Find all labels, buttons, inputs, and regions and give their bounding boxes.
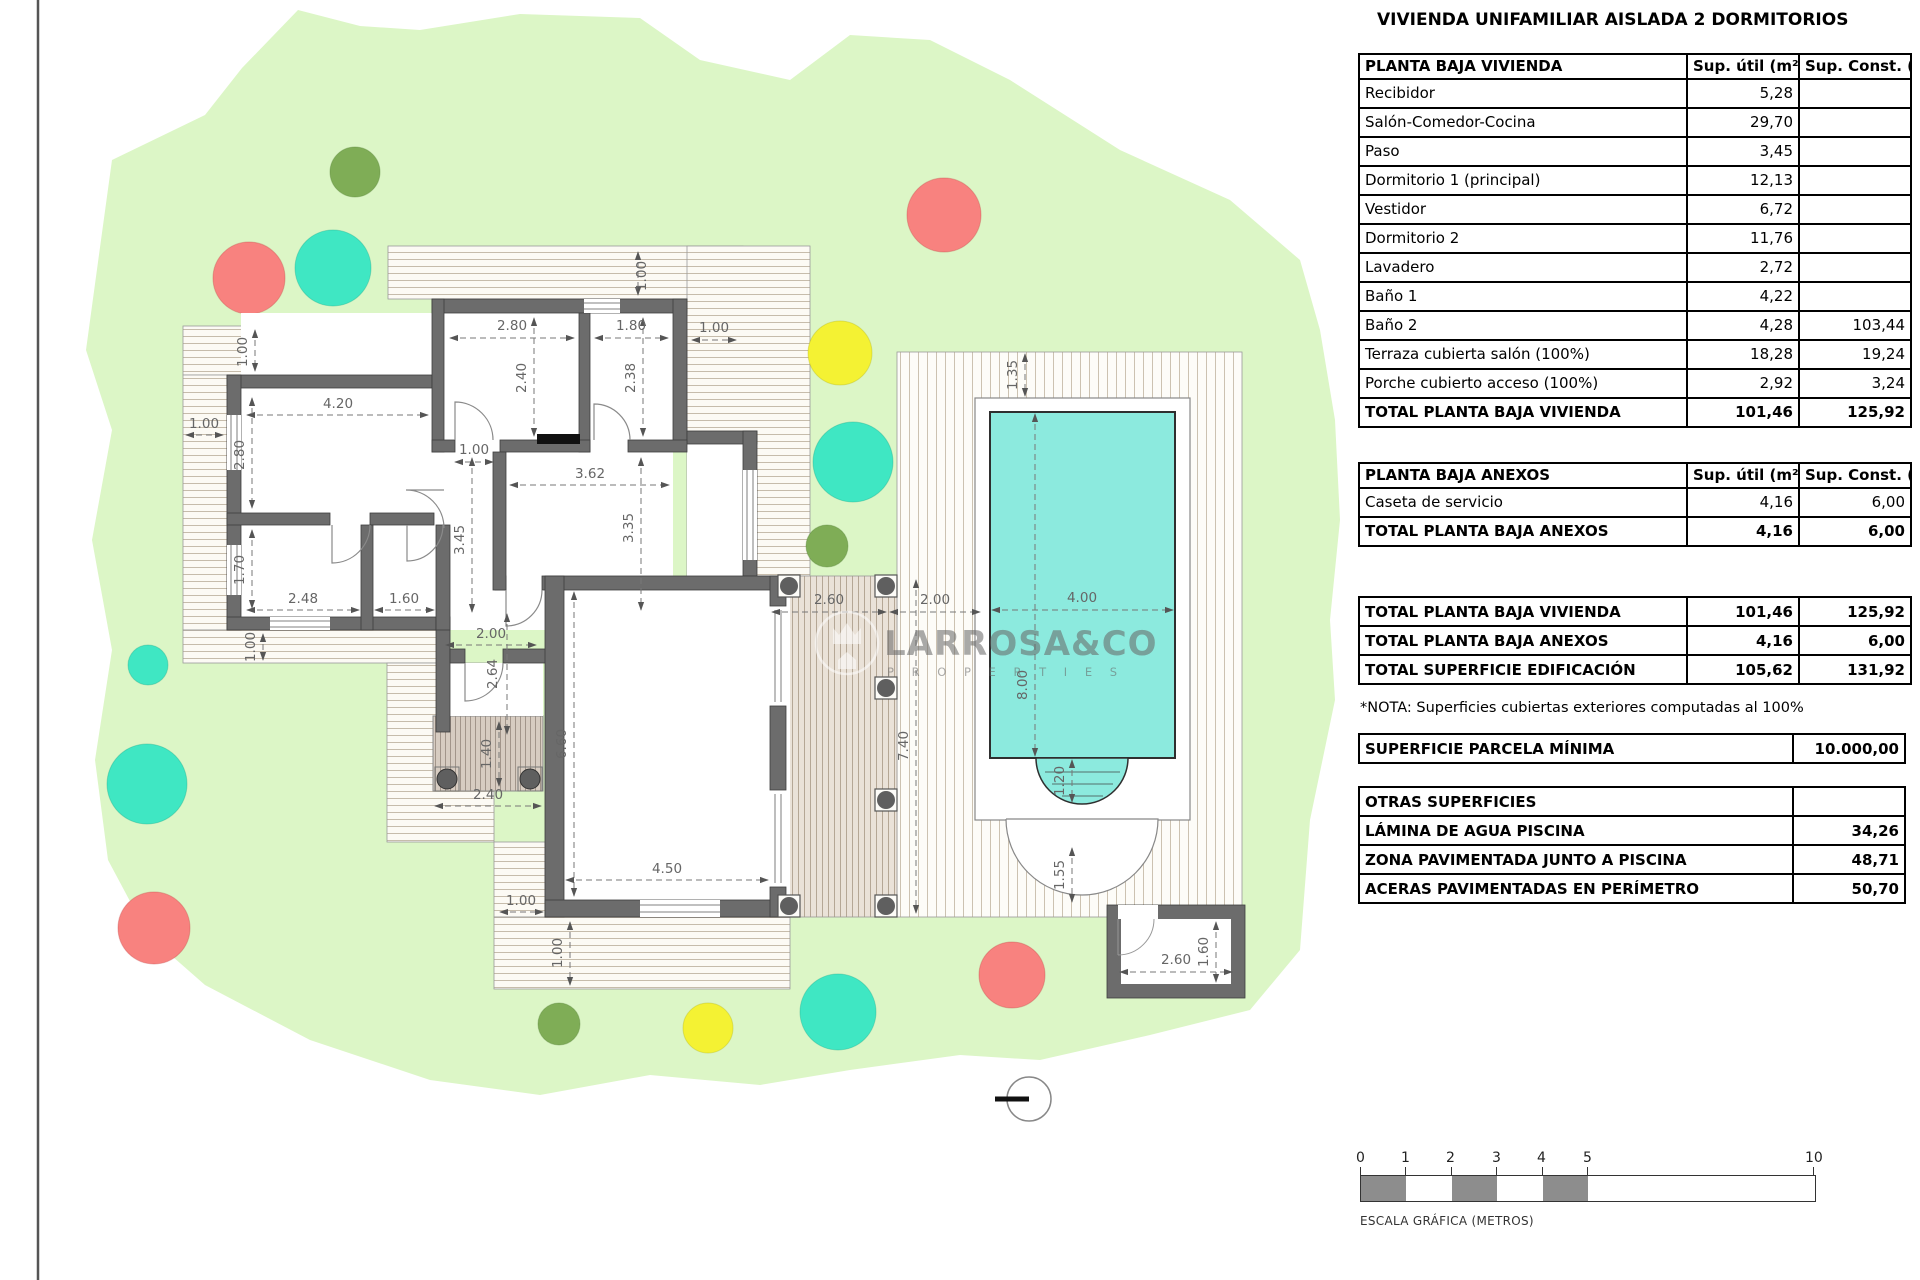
table-row: Lavadero2,72 bbox=[1359, 253, 1911, 282]
table-row: ACERAS PAVIMENTADAS EN PERÍMETRO50,70 bbox=[1359, 874, 1905, 903]
table-otras-superficies: OTRAS SUPERFICIES LÁMINA DE AGUA PISCINA… bbox=[1358, 786, 1906, 904]
watermark-subtext: P R O P E R T I E S bbox=[887, 665, 1124, 679]
dim-label: 2.80 bbox=[497, 318, 527, 334]
table-row: Caseta de servicio4,166,00 bbox=[1359, 488, 1911, 517]
scale-tick-label: 0 bbox=[1356, 1150, 1365, 1166]
table-planta-baja-vivienda: PLANTA BAJA VIVIENDA Sup. útil (m²) Sup.… bbox=[1358, 53, 1912, 428]
tree bbox=[295, 230, 371, 306]
table-row: Porche cubierto acceso (100%)2,923,24 bbox=[1359, 369, 1911, 398]
dim-label: 2.40 bbox=[514, 363, 530, 393]
watermark-text: LARROSA&CO bbox=[884, 624, 1158, 664]
table-parcela-minima: SUPERFICIE PARCELA MÍNIMA 10.000,00 bbox=[1358, 733, 1906, 764]
dim-label: 2.00 bbox=[920, 592, 950, 608]
col-header-sup-const: Sup. Const. (m²) bbox=[1799, 54, 1911, 79]
north-symbol bbox=[995, 1077, 1051, 1121]
dim-label: 1.35 bbox=[1005, 360, 1021, 390]
table-row: Baño 14,22 bbox=[1359, 282, 1911, 311]
table-row: Dormitorio 1 (principal)12,13 bbox=[1359, 166, 1911, 195]
table-total-row: TOTAL PLANTA BAJA VIVIENDA101,46125,92 bbox=[1359, 398, 1911, 427]
table-header-row: OTRAS SUPERFICIES bbox=[1359, 787, 1905, 816]
tree bbox=[979, 942, 1045, 1008]
scale-tick-label: 4 bbox=[1537, 1150, 1546, 1166]
pool-water bbox=[990, 412, 1175, 758]
table-row: Salón-Comedor-Cocina29,70 bbox=[1359, 108, 1911, 137]
floor-plan-sheet: 1.00 2.80 1.80 1.00 1.00 2.40 2.38 4.20 … bbox=[0, 0, 1920, 1280]
tree bbox=[907, 178, 981, 252]
dim-label: 1.20 bbox=[1052, 766, 1068, 796]
dim-label: 1.00 bbox=[235, 337, 251, 367]
table-total-row: TOTAL SUPERFICIE EDIFICACIÓN105,62131,92 bbox=[1359, 655, 1911, 684]
tree bbox=[806, 525, 848, 567]
tree bbox=[330, 147, 380, 197]
dim-label: 2.48 bbox=[288, 591, 318, 607]
tree bbox=[808, 321, 872, 385]
table-planta-baja-anexos: PLANTA BAJA ANEXOS Sup. útil (m²) Sup. C… bbox=[1358, 462, 1912, 547]
dim-label: 1.80 bbox=[616, 318, 646, 334]
dim-label: 1.60 bbox=[1196, 937, 1212, 967]
dim-label: 2.38 bbox=[623, 363, 639, 393]
dim-label: 1.70 bbox=[232, 555, 248, 585]
table-total-row: TOTAL PLANTA BAJA VIVIENDA101,46125,92 bbox=[1359, 597, 1911, 626]
tree bbox=[538, 1003, 580, 1045]
scale-bar bbox=[1360, 1175, 1816, 1202]
table-row: ZONA PAVIMENTADA JUNTO A PISCINA48,71 bbox=[1359, 845, 1905, 874]
dim-label: 3.35 bbox=[621, 513, 637, 543]
dim-label: 3.62 bbox=[575, 466, 605, 482]
table-row: Paso3,45 bbox=[1359, 137, 1911, 166]
table-total-row: TOTAL PLANTA BAJA ANEXOS4,166,00 bbox=[1359, 517, 1911, 546]
graphic-scale: 0 1 2 3 4 5 10 ESCALA GRÁFICA (METROS) bbox=[1360, 1150, 1830, 1240]
table-total-row: TOTAL PLANTA BAJA ANEXOS4,166,00 bbox=[1359, 626, 1911, 655]
table-row: SUPERFICIE PARCELA MÍNIMA 10.000,00 bbox=[1359, 734, 1905, 763]
dim-label: 1.00 bbox=[189, 416, 219, 432]
parcela-value: 10.000,00 bbox=[1793, 734, 1905, 763]
dim-label: 2.80 bbox=[232, 440, 248, 470]
tree bbox=[683, 1003, 733, 1053]
dim-label: 1.00 bbox=[459, 442, 489, 458]
dim-label: 4.20 bbox=[323, 396, 353, 412]
table-row: Terraza cubierta salón (100%)18,2819,24 bbox=[1359, 340, 1911, 369]
scale-tick-label: 5 bbox=[1583, 1150, 1592, 1166]
table-row: Baño 24,28103,44 bbox=[1359, 311, 1911, 340]
col-header-sup-util: Sup. útil (m²) bbox=[1687, 54, 1799, 79]
scale-tick-label: 10 bbox=[1805, 1150, 1823, 1166]
table-resumen: TOTAL PLANTA BAJA VIVIENDA101,46125,92 T… bbox=[1358, 596, 1912, 685]
dim-label: 1.55 bbox=[1052, 860, 1068, 890]
dim-label: 3.45 bbox=[452, 525, 468, 555]
table-row: Vestidor6,72 bbox=[1359, 195, 1911, 224]
table-header: PLANTA BAJA ANEXOS bbox=[1359, 463, 1687, 488]
page-title: VIVIENDA UNIFAMILIAR AISLADA 2 DORMITORI… bbox=[1377, 10, 1848, 30]
tree bbox=[800, 974, 876, 1050]
dim-label: 2.64 bbox=[485, 659, 501, 689]
dim-label: 6.60 bbox=[554, 729, 570, 759]
tree bbox=[118, 892, 190, 964]
dim-label: 2.60 bbox=[1161, 952, 1191, 968]
dim-label: 1.00 bbox=[634, 261, 650, 291]
dim-label: 7.40 bbox=[896, 731, 912, 761]
table-header-row: PLANTA BAJA VIVIENDA Sup. útil (m²) Sup.… bbox=[1359, 54, 1911, 79]
dim-label: 1.00 bbox=[243, 632, 259, 662]
nota-text: *NOTA: Superficies cubiertas exteriores … bbox=[1360, 700, 1804, 716]
table-header: PLANTA BAJA VIVIENDA bbox=[1359, 54, 1687, 79]
tree bbox=[107, 744, 187, 824]
dim-label: 1.00 bbox=[550, 938, 566, 968]
tree bbox=[213, 242, 285, 314]
covered-terrace bbox=[786, 576, 897, 917]
tree bbox=[813, 422, 893, 502]
table-row: Dormitorio 211,76 bbox=[1359, 224, 1911, 253]
dim-label: 1.00 bbox=[506, 893, 536, 909]
dim-label: 1.40 bbox=[479, 739, 495, 769]
scale-tick-label: 2 bbox=[1446, 1150, 1455, 1166]
dim-label: 1.00 bbox=[699, 320, 729, 336]
dim-label: 2.60 bbox=[814, 592, 844, 608]
dim-label: 2.40 bbox=[473, 787, 503, 803]
col-header-sup-const: Sup. Const. (m²) bbox=[1799, 463, 1911, 488]
dim-label: 2.00 bbox=[476, 626, 506, 642]
parcela-label: SUPERFICIE PARCELA MÍNIMA bbox=[1359, 734, 1793, 763]
table-header-row: PLANTA BAJA ANEXOS Sup. útil (m²) Sup. C… bbox=[1359, 463, 1911, 488]
scale-tick-label: 3 bbox=[1492, 1150, 1501, 1166]
table-row: LÁMINA DE AGUA PISCINA34,26 bbox=[1359, 816, 1905, 845]
scale-label: ESCALA GRÁFICA (METROS) bbox=[1360, 1214, 1534, 1228]
dim-label: 4.00 bbox=[1067, 590, 1097, 606]
scale-tick-label: 1 bbox=[1401, 1150, 1410, 1166]
table-row: Recibidor5,28 bbox=[1359, 79, 1911, 108]
col-header-sup-util: Sup. útil (m²) bbox=[1687, 463, 1799, 488]
table-header: OTRAS SUPERFICIES bbox=[1359, 787, 1793, 816]
lintel bbox=[537, 434, 580, 444]
dim-label: 1.60 bbox=[389, 591, 419, 607]
tree bbox=[128, 645, 168, 685]
dim-label: 4.50 bbox=[652, 861, 682, 877]
